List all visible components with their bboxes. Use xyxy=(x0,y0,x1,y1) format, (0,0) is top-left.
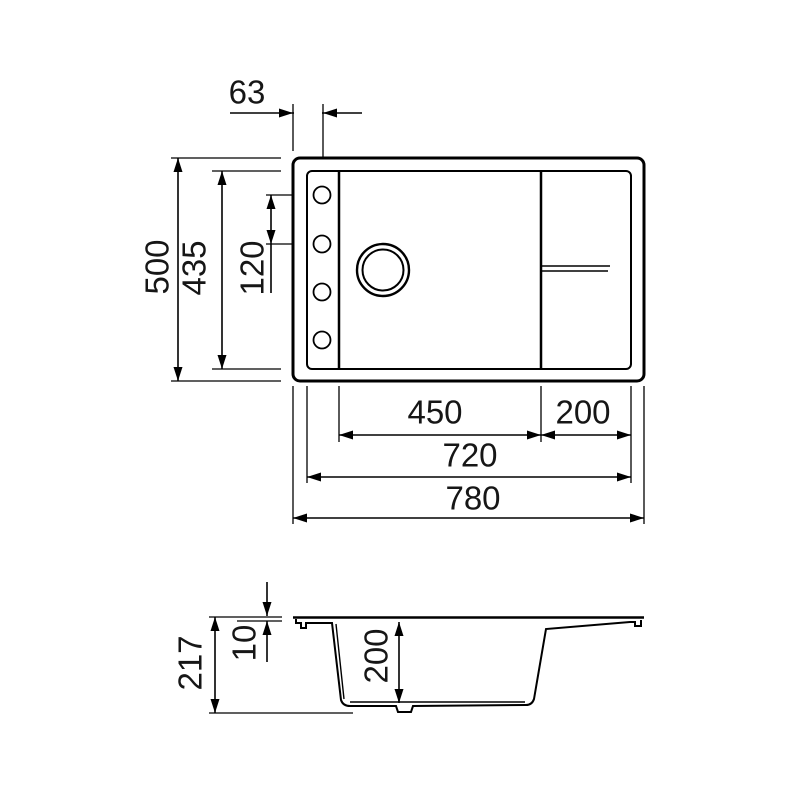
arrowhead xyxy=(174,158,183,172)
arrowhead xyxy=(323,109,337,118)
arrowhead xyxy=(339,431,353,440)
arrowhead xyxy=(541,431,555,440)
faucet-hole-2 xyxy=(314,236,331,253)
sink-rim-inner-edge xyxy=(307,171,631,369)
drain-hole-outer xyxy=(357,244,409,296)
arrowhead xyxy=(218,355,227,369)
dim-rim-inner-front-to-back-label: 435 xyxy=(176,240,213,295)
arrowhead xyxy=(267,195,276,209)
arrowhead xyxy=(211,699,220,713)
arrowhead xyxy=(211,617,220,631)
arrowhead xyxy=(263,621,272,635)
faucet-hole-4 xyxy=(314,332,331,349)
sink-section-view: 217 10 200 xyxy=(172,582,644,713)
dim-rim-inner-width-label: 720 xyxy=(442,437,497,474)
drawing-canvas: 63 500 435 120 450 200 720 780 xyxy=(0,0,800,800)
dim-rim-thickness-label: 10 xyxy=(226,625,263,662)
sink-top-view: 63 500 435 120 450 200 720 780 xyxy=(139,74,644,524)
section-profile-outline xyxy=(296,619,641,712)
arrowhead xyxy=(527,431,541,440)
technical-drawing: 63 500 435 120 450 200 720 780 xyxy=(0,0,800,800)
arrowhead xyxy=(617,431,631,440)
arrowhead xyxy=(174,367,183,381)
dim-section-overall-height-label: 217 xyxy=(172,635,209,690)
dim-overall-width-label: 780 xyxy=(445,480,500,517)
dim-hole-spacing-label: 120 xyxy=(234,240,271,295)
arrowhead xyxy=(630,514,644,523)
arrowhead xyxy=(263,602,272,616)
dim-hole-offset-label: 63 xyxy=(229,74,266,111)
dim-overall-front-to-back-label: 500 xyxy=(139,239,176,294)
arrowhead xyxy=(218,171,227,185)
arrowhead xyxy=(617,473,631,482)
dim-bowl-width-label: 450 xyxy=(407,394,462,431)
arrowhead xyxy=(307,473,321,482)
arrowhead xyxy=(279,109,293,118)
faucet-hole-1 xyxy=(314,187,331,204)
arrowhead xyxy=(395,689,404,703)
faucet-hole-3 xyxy=(314,284,331,301)
arrowhead xyxy=(293,514,307,523)
dim-drainer-width-label: 200 xyxy=(555,394,610,431)
dim-bowl-depth-label: 200 xyxy=(358,628,395,683)
arrowhead xyxy=(395,622,404,636)
